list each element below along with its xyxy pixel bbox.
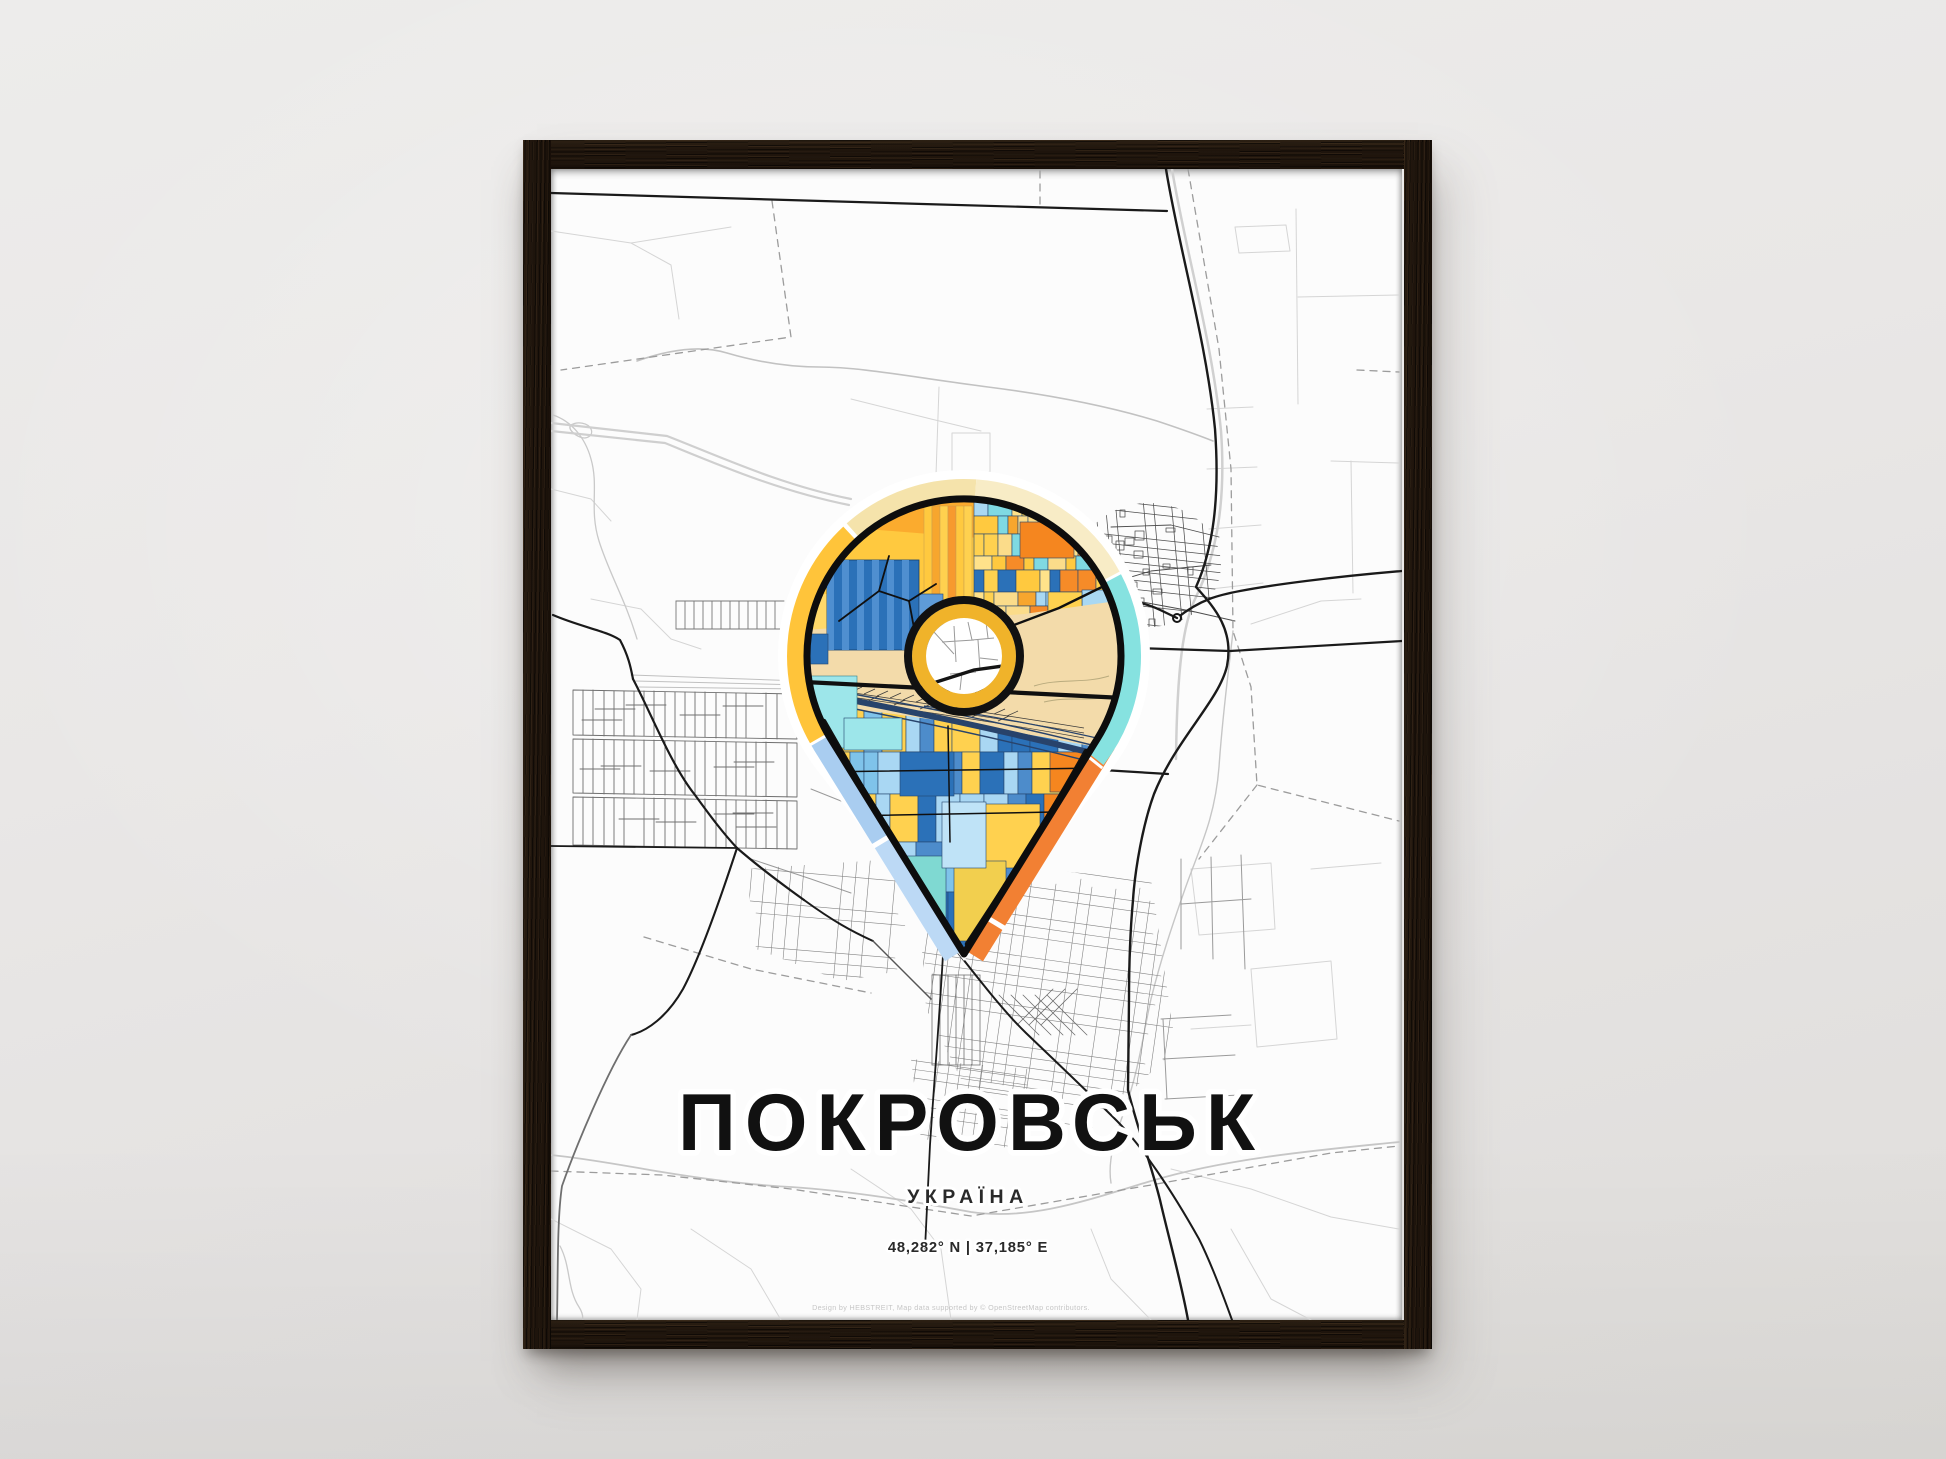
svg-text:УКРАЇНА: УКРАЇНА: [907, 1185, 1028, 1208]
svg-text:ПОКРОВСЬК: ПОКРОВСЬК: [678, 1078, 1264, 1168]
svg-text:48,282° N | 37,185° E: 48,282° N | 37,185° E: [888, 1240, 1048, 1256]
svg-text:Design by HEBSTREIT, Map data: Design by HEBSTREIT, Map data supported …: [812, 1303, 1090, 1312]
